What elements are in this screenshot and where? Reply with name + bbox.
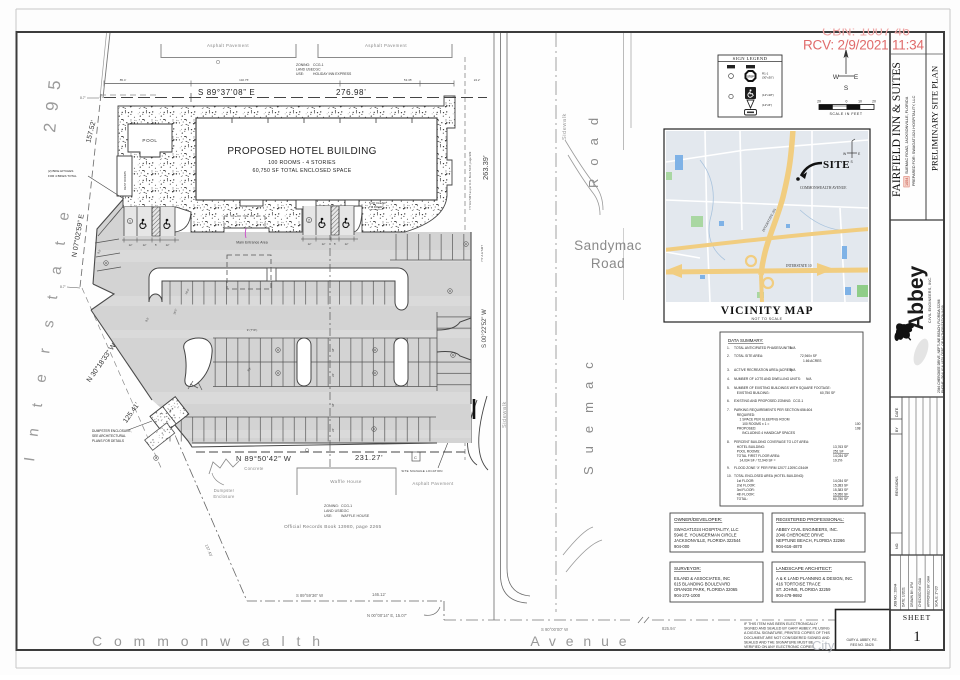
svg-text:S 00°22’52” W: S 00°22’52” W xyxy=(482,309,488,348)
svg-text:Dumpster: Dumpster xyxy=(214,488,235,493)
svg-text:100 ROOMS x 1 =: 100 ROOMS x 1 = xyxy=(734,422,769,426)
svg-text:E: E xyxy=(854,74,859,81)
svg-text:24’: 24’ xyxy=(331,373,335,377)
svg-text:SWAGAT1024 HOSPITALITY, LLC: SWAGAT1024 HOSPITALITY, LLC xyxy=(674,527,739,532)
svg-text:100: 100 xyxy=(855,422,861,426)
svg-text:8.: 8. xyxy=(727,440,730,444)
svg-text:6.: 6. xyxy=(727,399,730,403)
svg-text:S: S xyxy=(844,85,849,92)
svg-text:5.: 5. xyxy=(727,386,730,390)
svg-text:REG NO. 33425: REG NO. 33425 xyxy=(850,643,873,647)
svg-text:PERCENT BUILDING COVERAGE TO L: PERCENT BUILDING COVERAGE TO LOT AREA: xyxy=(734,440,809,444)
svg-text:5’: 5’ xyxy=(334,242,337,246)
svg-text:Road: Road xyxy=(591,256,625,271)
svg-text:JACKSONVILLE, FLORIDA 322544: JACKSONVILLE, FLORIDA 322544 xyxy=(674,538,741,543)
svg-text:15,383 SF: 15,383 SF xyxy=(833,484,848,488)
svg-text:SIGN LEGEND: SIGN LEGEND xyxy=(733,56,768,61)
svg-text:Suemac: Suemac xyxy=(581,349,596,475)
svg-text:2.: 2. xyxy=(727,354,730,358)
svg-text:PLANS FOR DETAILS: PLANS FOR DETAILS xyxy=(92,439,124,443)
svg-text:A v e n u e: A v e n u e xyxy=(530,633,629,649)
svg-text:TOTAL:: TOTAL: xyxy=(734,497,748,501)
svg-text:85.4’: 85.4’ xyxy=(120,78,127,82)
svg-text:USE:: USE: xyxy=(296,72,304,76)
svg-text:IF THIS ITEM HAS BEEN ELECTRON: IF THIS ITEM HAS BEEN ELECTRONICALLY xyxy=(744,622,818,626)
svg-text:SUEMAC ROAD, JACKSONVILLE, FLO: SUEMAC ROAD, JACKSONVILLE, FLORIDA xyxy=(905,96,909,174)
svg-text:CGC: CGC xyxy=(341,509,349,513)
svg-text:1.: 1. xyxy=(727,346,730,350)
svg-text:Enclosure: Enclosure xyxy=(213,494,235,499)
svg-text:Asphalt Pavement: Asphalt Pavement xyxy=(412,481,454,486)
svg-text:NUMBER OF LOTS AND DWELLING UN: NUMBER OF LOTS AND DWELLING UNITS: xyxy=(734,377,801,381)
svg-text:Road: Road xyxy=(586,105,601,188)
svg-text:3rd FLOOR:: 3rd FLOOR: xyxy=(734,488,755,492)
svg-text:TO DOOR: TO DOOR xyxy=(369,205,382,209)
svg-text:263.39’: 263.39’ xyxy=(481,155,490,180)
svg-text:(12”x6”): (12”x6”) xyxy=(762,103,772,107)
svg-text:EXISTING AND PROPOSED ZONING:: EXISTING AND PROPOSED ZONING: xyxy=(734,399,791,403)
svg-text:72,940± SF: 72,940± SF xyxy=(800,354,817,358)
svg-text:53.35’: 53.35’ xyxy=(404,78,413,82)
svg-text:4.: 4. xyxy=(727,377,730,381)
svg-text:276.98’: 276.98’ xyxy=(336,88,366,97)
svg-text:S 90°00’00” W: S 90°00’00” W xyxy=(541,627,568,632)
svg-text:REVISIONS: REVISIONS xyxy=(895,476,899,496)
svg-text:POOL ROOMS:: POOL ROOMS: xyxy=(734,450,760,454)
svg-text:SHEET: SHEET xyxy=(903,613,931,622)
svg-text:S 89°59’36” W: S 89°59’36” W xyxy=(296,593,323,598)
svg-text:POOL: POOL xyxy=(142,138,157,143)
svg-text:13,763 SF: 13,763 SF xyxy=(833,445,848,449)
svg-text:14,034 SF / 72,940 SF =: 14,034 SF / 72,940 SF = xyxy=(734,459,776,463)
svg-text:(30”x30”): (30”x30”) xyxy=(762,76,774,80)
svg-text:CIVIL ENGINEERS, INC.: CIVIL ENGINEERS, INC. xyxy=(928,276,932,323)
svg-text:RCV: 2/9/2021 11:34: RCV: 2/9/2021 11:34 xyxy=(803,38,924,53)
svg-text:12’: 12’ xyxy=(308,242,312,246)
svg-text:APPROVED BY: GAA: APPROVED BY: GAA xyxy=(926,575,930,607)
svg-text:0: 0 xyxy=(846,100,848,104)
svg-text:825.94’: 825.94’ xyxy=(662,626,676,631)
svg-text:HOLIDAY INN EXPRESS: HOLIDAY INN EXPRESS xyxy=(313,72,352,76)
svg-text:N 00°00’14” E, 15.07’: N 00°00’14” E, 15.07’ xyxy=(367,613,407,618)
svg-text:COMMONWEALTH AVENUE: COMMONWEALTH AVENUE xyxy=(800,186,847,190)
svg-text:100 ROOMS - 4 STORIES: 100 ROOMS - 4 STORIES xyxy=(268,160,336,166)
svg-text:60,750 SF: 60,750 SF xyxy=(833,497,848,501)
svg-text:(2) BIKE HITCHES: (2) BIKE HITCHES xyxy=(48,169,73,173)
svg-text:INTERSTATE 10: INTERSTATE 10 xyxy=(786,264,812,268)
svg-text:18’: 18’ xyxy=(331,403,335,407)
svg-text:15,950 SF: 15,950 SF xyxy=(833,493,848,497)
svg-text:CCG-1: CCG-1 xyxy=(341,504,352,508)
svg-text:Sidewalk: Sidewalk xyxy=(502,401,508,428)
svg-text:JOB NO.: 20044: JOB NO.: 20044 xyxy=(894,583,898,607)
svg-text:Waffle House: Waffle House xyxy=(330,479,362,484)
svg-text:9.: 9. xyxy=(727,466,730,470)
svg-text:19.2%: 19.2% xyxy=(833,459,842,463)
svg-text:TOTAL ANTICIPATED PHASES/UNITS: TOTAL ANTICIPATED PHASES/UNITS: xyxy=(734,346,792,350)
svg-text:C o m m o n w e a l t h: C o m m o n w e a l t h xyxy=(92,633,324,649)
svg-text:24’: 24’ xyxy=(331,428,335,432)
svg-text:3.: 3. xyxy=(727,368,730,372)
svg-text:2nd FLOOR:: 2nd FLOOR: xyxy=(734,484,756,488)
svg-text:TOTAL FIRST FLOOR AREA:: TOTAL FIRST FLOOR AREA: xyxy=(734,454,780,458)
svg-text:2046 CHEROKEE DRIVE: 2046 CHEROKEE DRIVE xyxy=(776,533,824,538)
svg-text:15,383 SF: 15,383 SF xyxy=(833,488,848,492)
svg-text:CGC: CGC xyxy=(313,68,321,72)
svg-text:615 BLANDING BOULEVARD: 615 BLANDING BOULEVARD xyxy=(674,582,730,587)
svg-text:REGISTERED PROFESSIONAL:: REGISTERED PROFESSIONAL: xyxy=(776,517,844,522)
svg-text:7.: 7. xyxy=(727,408,730,412)
svg-text:Concrete: Concrete xyxy=(244,466,264,471)
svg-text:10: 10 xyxy=(858,100,862,104)
svg-text:PRELIMINARY SITE PLAN: PRELIMINARY SITE PLAN xyxy=(930,65,940,171)
svg-text:SEE ARCHITECTURAL: SEE ARCHITECTURAL xyxy=(92,434,126,438)
svg-text:STOP: STOP xyxy=(747,75,754,78)
svg-text:S 89°37’08” E: S 89°37’08” E xyxy=(198,88,255,97)
svg-text:VICINITY MAP: VICINITY MAP xyxy=(721,305,814,317)
svg-text:CCG-1: CCG-1 xyxy=(793,399,803,403)
svg-text:GARY A. ABBEY, P.E.: GARY A. ABBEY, P.E. xyxy=(847,638,878,642)
svg-text:DUMPSTER ENCLOSURE,: DUMPSTER ENCLOSURE, xyxy=(92,429,132,433)
svg-text:7.5’ Δ E’SMT: 7.5’ Δ E’SMT xyxy=(480,245,484,262)
svg-text:10.: 10. xyxy=(727,474,732,478)
svg-text:Sidewalk: Sidewalk xyxy=(562,113,568,140)
svg-text:Asphalt Pavement: Asphalt Pavement xyxy=(207,43,249,48)
svg-text:ZONING:: ZONING: xyxy=(296,63,310,67)
svg-text:CCG-1: CCG-1 xyxy=(313,63,324,67)
svg-text:W: W xyxy=(833,74,840,81)
svg-text:LANDSCAPE ARCHITECT:: LANDSCAPE ARCHITECT: xyxy=(776,566,832,571)
svg-text:DATA SUMMARY:: DATA SUMMARY: xyxy=(728,338,763,343)
svg-text:12’: 12’ xyxy=(166,243,170,247)
svg-text:SITE SIGNAGE LOCATION: SITE SIGNAGE LOCATION xyxy=(401,469,442,473)
svg-text:5’: 5’ xyxy=(155,243,158,247)
svg-text:PARKING REQUIREMENTS PER SECTI: PARKING REQUIREMENTS PER SECTION 656.604 xyxy=(734,408,812,412)
svg-text:NOT TO SCALE: NOT TO SCALE xyxy=(752,317,783,321)
svg-text:N/A: N/A xyxy=(790,346,796,350)
svg-text:1054: 1054 xyxy=(905,178,909,186)
svg-text:12’: 12’ xyxy=(143,243,147,247)
svg-text:146.12’: 146.12’ xyxy=(372,592,386,597)
svg-text:1.66 ACRES: 1.66 ACRES xyxy=(803,359,822,363)
svg-text:24.2’: 24.2’ xyxy=(474,78,481,82)
svg-text:60,750 SF TOTAL ENCLOSED SPACE: 60,750 SF TOTAL ENCLOSED SPACE xyxy=(253,168,352,174)
svg-text:LAND USE:: LAND USE: xyxy=(296,68,314,72)
svg-text:4th FLOOR:: 4th FLOOR: xyxy=(734,493,755,497)
svg-text:A DIGITAL SIGNATURE, PRINTED C: A DIGITAL SIGNATURE, PRINTED COPIES OF T… xyxy=(744,631,831,635)
svg-text:ACTIVE RECREATION AREA (ACRES): ACTIVE RECREATION AREA (ACRES): xyxy=(734,368,793,372)
svg-text:FAIRFIELD INN & SUITES: FAIRFIELD INN & SUITES xyxy=(891,62,903,197)
svg-text:VERIFIED ON ANY ELECTRONIC COP: VERIFIED ON ANY ELECTRONIC COPIES. xyxy=(744,645,815,649)
svg-text:1: 1 xyxy=(913,629,921,645)
svg-text:DATE: 1/2021: DATE: 1/2021 xyxy=(902,587,906,607)
svg-text:SURVEYOR:: SURVEYOR: xyxy=(674,566,701,571)
svg-text:Official Records Book 13980, p: Official Records Book 13980, page 2265 xyxy=(284,524,381,530)
svg-text:108: 108 xyxy=(855,427,861,431)
svg-text:TOTAL SITE AREA:: TOTAL SITE AREA: xyxy=(734,354,763,358)
svg-text:C: C xyxy=(414,455,417,460)
svg-text:20: 20 xyxy=(817,100,821,104)
svg-text:18’: 18’ xyxy=(331,348,335,352)
svg-text:NEPTUNE BEACH, FLORIDA 32266: NEPTUNE BEACH, FLORIDA 32266 xyxy=(776,538,845,543)
svg-text:PROPOSED HOTEL BUILDING: PROPOSED HOTEL BUILDING xyxy=(227,146,376,157)
svg-text:INCLUDING 4 HANDICAP SPACES: INCLUDING 4 HANDICAP SPACES xyxy=(734,431,796,435)
svg-text:DATE: DATE xyxy=(895,407,899,417)
svg-text:14,034 SF: 14,034 SF xyxy=(833,479,848,483)
svg-text:CHECKED BY: GAA: CHECKED BY: GAA xyxy=(918,577,922,607)
svg-text:9’ (TYP.): 9’ (TYP.) xyxy=(247,328,258,332)
svg-text:SITE: SITE xyxy=(823,159,850,171)
svg-text:12’: 12’ xyxy=(322,242,326,246)
svg-text:NO.: NO. xyxy=(895,543,899,549)
svg-text:416 TORTOISE TRACE: 416 TORTOISE TRACE xyxy=(776,582,821,587)
svg-text:N 89°50’42” W: N 89°50’42” W xyxy=(236,454,292,463)
svg-text:EXISTING BUILDING:: EXISTING BUILDING: xyxy=(734,391,770,395)
svg-text:60,750 SF: 60,750 SF xyxy=(820,391,835,395)
svg-text:Sandymac: Sandymac xyxy=(574,238,642,253)
svg-text:PHONE: (904) 616-4870 CERT.: PHONE: (904) 616-4870 CERT. OF AUTHORIZA… xyxy=(941,305,945,393)
svg-text:904-478-9692: 904-478-9692 xyxy=(776,593,803,598)
svg-text:N/A: N/A xyxy=(790,368,796,372)
svg-text:FOR 4 BIKES TOTAL: FOR 4 BIKES TOTAL xyxy=(48,174,77,178)
svg-text:7.5’ Δ E’SMT as per O.R. Book: 7.5’ Δ E’SMT as per O.R. Book 5447, page… xyxy=(468,151,472,210)
svg-text:Asphalt Pavement: Asphalt Pavement xyxy=(365,43,407,48)
svg-text:12’: 12’ xyxy=(129,243,133,247)
svg-text:1st FLOOR:: 1st FLOOR: xyxy=(734,479,754,483)
svg-text:251 SF: 251 SF xyxy=(833,450,844,454)
svg-text:OWNER/DEVELOPER:: OWNER/DEVELOPER: xyxy=(674,517,722,522)
svg-text:USE:: USE: xyxy=(324,514,332,518)
svg-text:SEALED AND THE SIGNATURE MUST: SEALED AND THE SIGNATURE MUST BE xyxy=(744,640,814,644)
svg-text:904-616-4870: 904-616-4870 xyxy=(776,544,803,549)
svg-text:SCALE IN FEET: SCALE IN FEET xyxy=(829,112,862,116)
svg-text:WAFFLE HOUSE: WAFFLE HOUSE xyxy=(341,514,370,518)
svg-text:231.27’: 231.27’ xyxy=(355,453,383,462)
svg-text:Main Entrance Area: Main Entrance Area xyxy=(236,241,268,245)
svg-text:N/A: N/A xyxy=(806,377,812,381)
svg-text:A & K LAND PLANNING & DESIGN,: A & K LAND PLANNING & DESIGN, INC. xyxy=(776,576,853,581)
svg-text:1 SPACE PER SLEEPING ROOM: 1 SPACE PER SLEEPING ROOM xyxy=(734,418,790,422)
svg-text:NUMBER OF EXISTING BUILDINGS W: NUMBER OF EXISTING BUILDINGS WITH SQUARE… xyxy=(734,386,831,390)
svg-text:ST. JOHNS, FLORIDA 32259: ST. JOHNS, FLORIDA 32259 xyxy=(776,587,831,592)
svg-text:PROPOSED:: PROPOSED: xyxy=(734,427,756,431)
svg-text:132.75’: 132.75’ xyxy=(239,78,249,82)
svg-text:Abbey: Abbey xyxy=(905,266,928,331)
svg-text:BY: BY xyxy=(895,427,899,432)
svg-text:14,034 SF: 14,034 SF xyxy=(833,454,848,458)
svg-text:HOTEL BUILDING:: HOTEL BUILDING: xyxy=(734,445,765,449)
svg-text:TOTAL ENCLOSED AREA (HOTEL BUI: TOTAL ENCLOSED AREA (HOTEL BUILDING): xyxy=(734,474,804,478)
svg-text:ORANGE PARK, FLORIDA 32065: ORANGE PARK, FLORIDA 32065 xyxy=(674,587,738,592)
svg-text:REQUIRED:: REQUIRED: xyxy=(734,413,755,417)
svg-text:ZONING:: ZONING: xyxy=(324,504,339,508)
svg-text:0.7’: 0.7’ xyxy=(80,96,86,100)
svg-text:SCALE: 1”=20’: SCALE: 1”=20’ xyxy=(935,586,939,607)
svg-text:PREPARED FOR: SWAGAT1024 HOSPI: PREPARED FOR: SWAGAT1024 HOSPITALITY, LL… xyxy=(912,95,916,186)
svg-text:REST ROOMS: REST ROOMS xyxy=(123,171,127,190)
svg-text:5946 E. YOUNGERMAN CIRCLE: 5946 E. YOUNGERMAN CIRCLE xyxy=(674,533,737,538)
svg-text:EILAND & ASSOCIATES, INC: EILAND & ASSOCIATES, INC xyxy=(674,576,730,581)
svg-text:20: 20 xyxy=(872,100,876,104)
svg-text:(12”x18”): (12”x18”) xyxy=(762,93,774,97)
svg-text:904-000: 904-000 xyxy=(674,544,690,549)
svg-text:904-272-1000: 904-272-1000 xyxy=(674,593,701,598)
svg-text:DRAWN BY: JFM: DRAWN BY: JFM xyxy=(910,582,914,607)
svg-text:ABBEY CIVIL ENGINEERS, INC.: ABBEY CIVIL ENGINEERS, INC. xyxy=(776,527,838,532)
svg-text:12’: 12’ xyxy=(345,242,349,246)
svg-text:SIGNED AND SEALED BY GARY ABBE: SIGNED AND SEALED BY GARY ABBEY, PE USIN… xyxy=(744,627,830,631)
svg-text:FLOOD ZONE ‘X’ PER FIRM 12077-: FLOOD ZONE ‘X’ PER FIRM 12077-1209C-0344… xyxy=(734,466,809,470)
